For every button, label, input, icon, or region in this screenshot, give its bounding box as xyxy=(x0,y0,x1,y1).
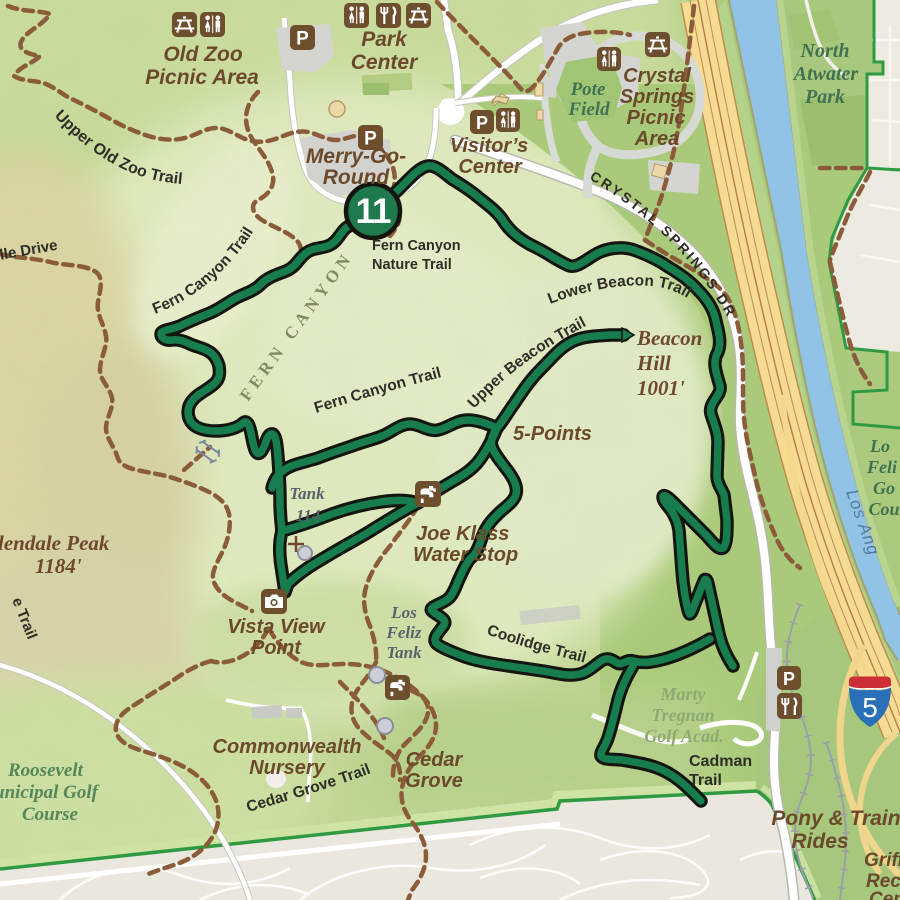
svg-text:Cent: Cent xyxy=(869,889,900,900)
svg-text:Go: Go xyxy=(873,478,895,498)
svg-text:Point: Point xyxy=(251,637,302,659)
svg-text:Beacon: Beacon xyxy=(636,326,702,350)
svg-text:Griffi: Griffi xyxy=(864,850,900,871)
svg-text:Feli: Feli xyxy=(866,457,897,477)
svg-text:Cadman: Cadman xyxy=(689,753,752,770)
svg-text:Park: Park xyxy=(361,28,408,51)
svg-text:Los: Los xyxy=(390,603,417,622)
svg-text:Area: Area xyxy=(634,128,679,150)
svg-text:Springs: Springs xyxy=(620,86,694,108)
svg-text:Nursery: Nursery xyxy=(249,757,325,779)
svg-text:Vista View: Vista View xyxy=(227,616,326,638)
svg-text:Golf Acad.: Golf Acad. xyxy=(644,726,723,746)
svg-text:Lo: Lo xyxy=(869,436,890,456)
svg-text:Field: Field xyxy=(567,99,610,120)
svg-text:Merry-Go-: Merry-Go- xyxy=(306,145,406,168)
svg-text:P: P xyxy=(783,669,795,689)
svg-text:Picnic: Picnic xyxy=(627,107,686,129)
svg-text:Tank: Tank xyxy=(289,484,325,503)
svg-text:P: P xyxy=(296,29,309,50)
svg-text:Park: Park xyxy=(804,86,845,108)
svg-text:Water Stop: Water Stop xyxy=(413,544,518,566)
svg-text:1001': 1001' xyxy=(637,376,685,400)
svg-text:lendale Peak: lendale Peak xyxy=(0,531,110,555)
svg-text:unicipal Golf: unicipal Golf xyxy=(0,782,100,803)
svg-text:Center: Center xyxy=(351,51,419,74)
svg-text:Rides: Rides xyxy=(791,830,848,853)
svg-text:Roosevelt: Roosevelt xyxy=(7,760,84,781)
svg-text:Joe Klass: Joe Klass xyxy=(416,523,509,545)
svg-text:5-Points: 5-Points xyxy=(513,423,592,445)
svg-text:Course: Course xyxy=(22,804,79,825)
svg-text:P: P xyxy=(476,113,488,133)
svg-text:Marty: Marty xyxy=(660,684,707,704)
svg-text:Round: Round xyxy=(323,166,391,189)
svg-text:Grove: Grove xyxy=(405,770,463,792)
svg-text:Fern Canyon: Fern Canyon xyxy=(372,238,461,254)
svg-text:Visitor’s: Visitor’s xyxy=(450,135,529,157)
svg-text:Hill: Hill xyxy=(636,351,671,375)
svg-text:Pony & Train: Pony & Train xyxy=(771,807,900,830)
svg-text:Atwater: Atwater xyxy=(792,63,859,85)
svg-text:Center: Center xyxy=(458,156,523,178)
svg-text:Cou: Cou xyxy=(868,499,899,519)
svg-text:11: 11 xyxy=(356,192,392,231)
svg-text:Commonwealth: Commonwealth xyxy=(213,736,362,758)
svg-text:Trail: Trail xyxy=(689,772,722,789)
svg-text:5: 5 xyxy=(862,692,878,723)
svg-text:Crystal: Crystal xyxy=(623,65,691,87)
svg-text:114: 114 xyxy=(296,506,321,525)
svg-text:North: North xyxy=(800,40,850,62)
svg-text:Old Zoo: Old Zoo xyxy=(163,43,242,66)
svg-text:Tregnan: Tregnan xyxy=(651,705,714,725)
svg-text:Feliz: Feliz xyxy=(386,623,422,642)
svg-text:Tank: Tank xyxy=(386,643,422,662)
svg-text:Nature Trail: Nature Trail xyxy=(372,257,452,273)
svg-text:Picnic Area: Picnic Area xyxy=(145,66,259,89)
svg-text:1184': 1184' xyxy=(35,554,82,578)
svg-text:Pote: Pote xyxy=(570,79,606,100)
svg-text:Cedar: Cedar xyxy=(406,749,464,771)
